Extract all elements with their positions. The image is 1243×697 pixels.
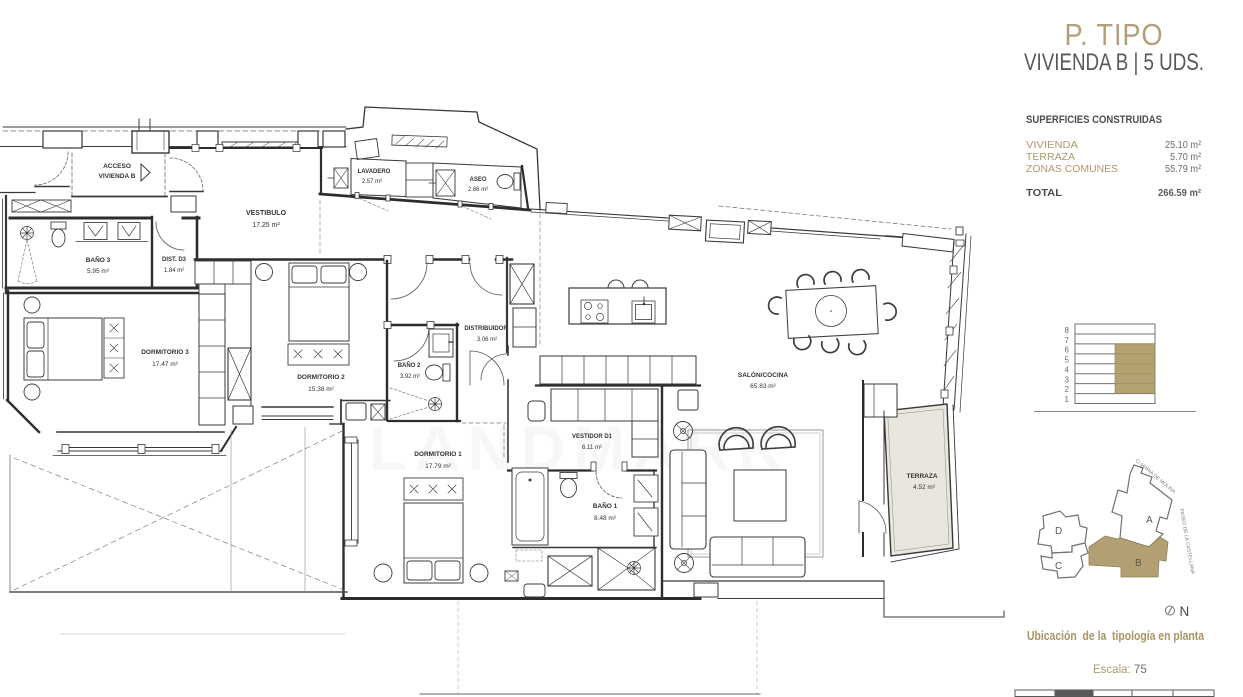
svg-text:ZONAS COMUNES: ZONAS COMUNES	[1026, 164, 1118, 175]
svg-text:SALÓN/COCINA: SALÓN/COCINA	[738, 370, 789, 379]
svg-text:C: C	[1055, 561, 1062, 572]
svg-text:VIVIENDA B | 5 UDS.: VIVIENDA B | 5 UDS.	[1024, 49, 1204, 76]
svg-text:17.25 m²: 17.25 m²	[252, 222, 280, 229]
svg-text:DIST. D3: DIST. D3	[162, 257, 187, 263]
svg-text:1.84 m²: 1.84 m²	[164, 268, 184, 274]
svg-text:ACCESO: ACCESO	[103, 163, 131, 170]
svg-text:266.59 m²: 266.59 m²	[1158, 187, 1201, 199]
svg-text:TERRAZA: TERRAZA	[1026, 152, 1075, 163]
svg-text:4.52 m²: 4.52 m²	[913, 484, 936, 491]
svg-text:55.79 m²: 55.79 m²	[1165, 164, 1202, 175]
svg-text:2.66 m²: 2.66 m²	[468, 187, 488, 193]
svg-text:A: A	[1146, 515, 1153, 526]
svg-text:LAVADERO: LAVADERO	[358, 169, 391, 175]
svg-text:2: 2	[1065, 385, 1070, 394]
svg-text:N: N	[1180, 604, 1190, 619]
svg-text:VIVIENDA: VIVIENDA	[1026, 140, 1078, 151]
svg-text:2.57 m²: 2.57 m²	[362, 179, 382, 185]
svg-text:SUPERFICIES CONSTRUIDAS: SUPERFICIES CONSTRUIDAS	[1026, 114, 1162, 126]
svg-text:DORMITORIO 3: DORMITORIO 3	[141, 349, 189, 356]
svg-text:6: 6	[1065, 346, 1070, 355]
svg-text:3.92 m²: 3.92 m²	[400, 374, 420, 380]
svg-text:8.48 m²: 8.48 m²	[594, 515, 617, 522]
svg-text:DISTRIBUIDOR: DISTRIBUIDOR	[464, 326, 508, 332]
svg-text:5: 5	[1065, 356, 1070, 365]
svg-text:ASEO: ASEO	[469, 177, 486, 183]
svg-text:Ubicación de la tipología en: Ubicación de la tipología en planta	[1027, 629, 1205, 643]
svg-text:D: D	[1055, 526, 1062, 537]
svg-text:7: 7	[1065, 336, 1070, 345]
svg-text:DORMITORIO 1: DORMITORIO 1	[414, 451, 462, 458]
svg-text:BAÑO 3: BAÑO 3	[86, 255, 111, 264]
svg-text:Escala: 75: Escala: 75	[1093, 664, 1147, 676]
svg-text:VESTIBULO: VESTIBULO	[246, 210, 287, 217]
svg-text:VESTIDOR D1: VESTIDOR D1	[572, 434, 613, 440]
svg-text:65.83 m²: 65.83 m²	[750, 383, 776, 390]
svg-text:3: 3	[1065, 375, 1070, 384]
svg-text:15.38 m²: 15.38 m²	[308, 386, 334, 393]
svg-text:5.95 m²: 5.95 m²	[87, 268, 110, 275]
svg-text:17.79 m²: 17.79 m²	[425, 463, 451, 470]
svg-text:P. TIPO: P. TIPO	[1065, 17, 1164, 52]
svg-text:3.06 m²: 3.06 m²	[477, 337, 497, 343]
svg-text:BAÑO 1: BAÑO 1	[593, 501, 618, 510]
svg-text:1: 1	[1065, 395, 1070, 404]
svg-text:TERRAZA: TERRAZA	[906, 473, 937, 480]
svg-text:PASEO DE LA CASTELLANA: PASEO DE LA CASTELLANA	[1178, 508, 1196, 575]
svg-text:8: 8	[1065, 326, 1070, 335]
svg-text:BAÑO 2: BAÑO 2	[398, 362, 421, 369]
svg-text:17.47 m²: 17.47 m²	[152, 361, 178, 368]
svg-text:B: B	[1135, 558, 1142, 569]
svg-text:5.70 m²: 5.70 m²	[1170, 152, 1202, 163]
svg-text:6.11 m²: 6.11 m²	[582, 445, 602, 451]
svg-text:25.10 m²: 25.10 m²	[1165, 140, 1202, 151]
svg-text:VIVIENDA B: VIVIENDA B	[99, 173, 136, 180]
svg-text:4: 4	[1065, 365, 1070, 374]
svg-text:DORMITORIO 2: DORMITORIO 2	[297, 374, 345, 381]
svg-text:TOTAL: TOTAL	[1026, 187, 1063, 199]
